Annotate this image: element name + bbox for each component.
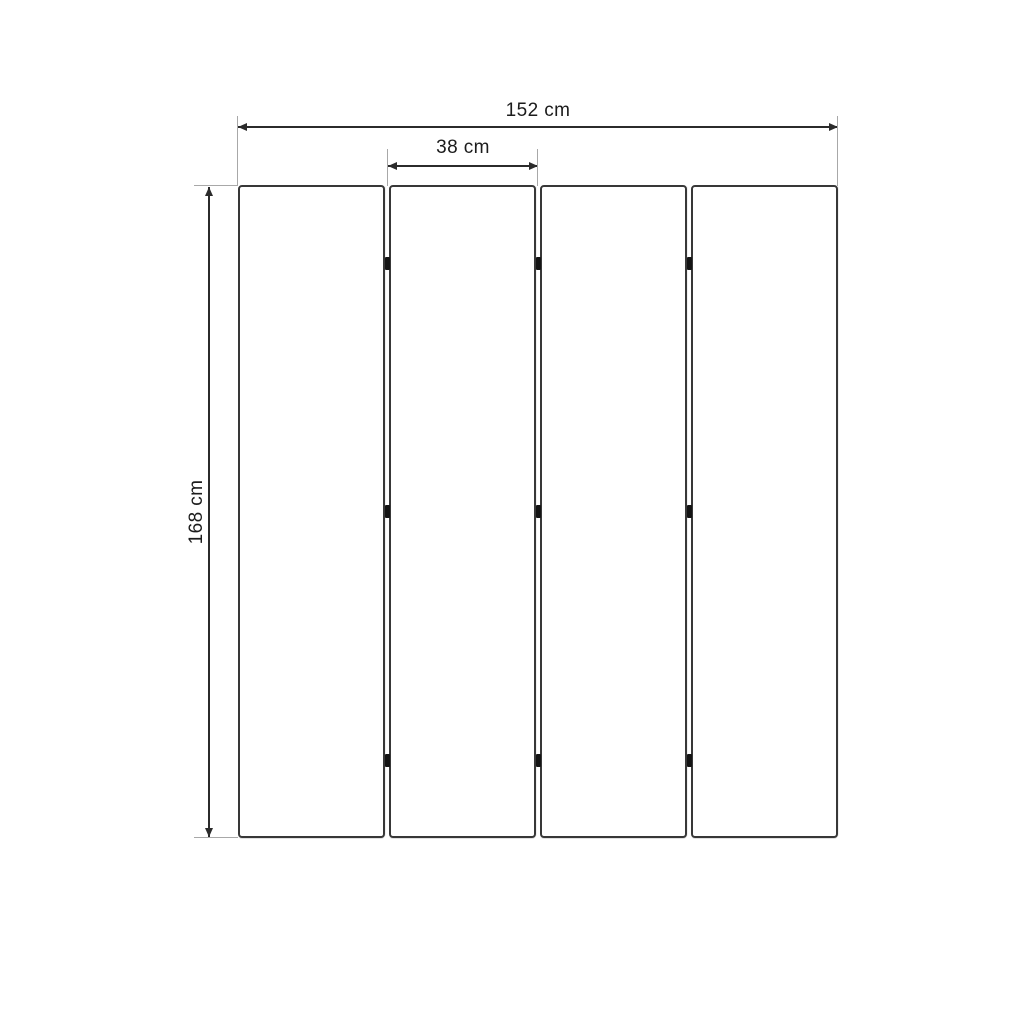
hinge-icon <box>536 754 541 767</box>
height-dimension-line <box>208 187 210 837</box>
panel-width-dimension-line <box>388 165 538 167</box>
extension-line-panel-right <box>537 149 538 186</box>
hinge-icon <box>536 505 541 518</box>
hinge-icon <box>385 257 390 270</box>
hinge-icon <box>687 505 692 518</box>
dimension-drawing: 152 cm 38 cm 168 cm <box>0 0 1024 1024</box>
panel-2 <box>389 185 536 838</box>
hinge-icon <box>536 257 541 270</box>
hinge-icon <box>687 754 692 767</box>
extension-line-bottom <box>194 837 238 838</box>
panel-4 <box>691 185 838 838</box>
total-width-dimension-line <box>238 126 838 128</box>
extension-line-top <box>194 185 238 186</box>
panel-width-label: 38 cm <box>388 137 538 159</box>
arrowhead-up-icon <box>205 187 213 196</box>
panel-1 <box>238 185 385 838</box>
panel-3 <box>540 185 687 838</box>
hinge-icon <box>385 754 390 767</box>
hinge-icon <box>687 257 692 270</box>
total-width-label: 152 cm <box>238 100 838 122</box>
arrowhead-left-icon <box>388 162 397 170</box>
height-label: 168 cm <box>186 462 208 562</box>
divider-panels <box>238 185 838 838</box>
arrowhead-left-icon <box>238 123 247 131</box>
hinge-icon <box>385 505 390 518</box>
extension-line-left <box>237 116 238 186</box>
extension-line-panel-left <box>387 149 388 186</box>
arrowhead-down-icon <box>205 828 213 837</box>
extension-line-right <box>837 116 838 186</box>
